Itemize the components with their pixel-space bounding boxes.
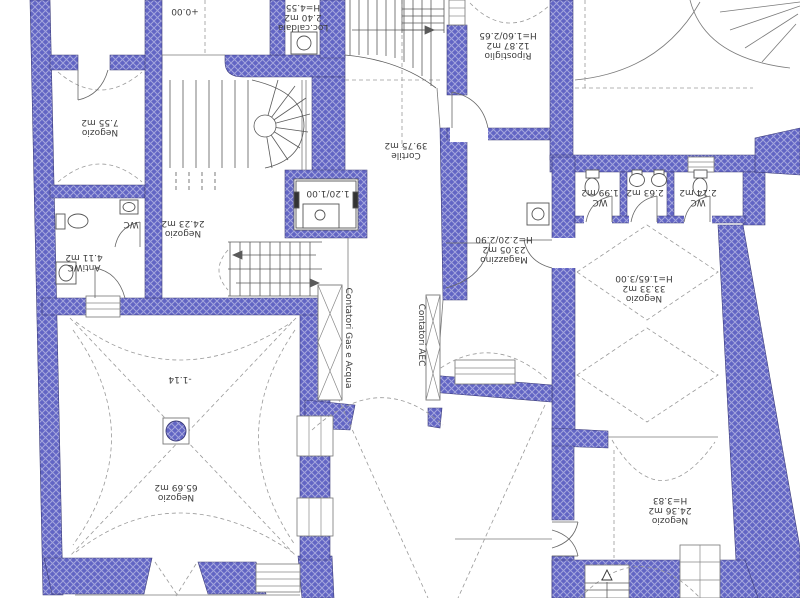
room-label-ripostiglio: Ripostiglio 12.87 m2 H=1.60/2.65 bbox=[479, 30, 536, 60]
room-label-negozio-755: Negozio 7.55 m2 bbox=[81, 117, 118, 137]
room-label-negozio-2423: Negozio 24.23 m2 bbox=[161, 218, 204, 238]
level-label-lower: -1.14 bbox=[168, 374, 191, 384]
floor-plan: +0.00 Negozio 7.55 m2 WC AntiWC 4.11 m2 … bbox=[0, 0, 800, 598]
elevator-size-label: 1.20/1.00 bbox=[306, 188, 349, 198]
room-label-magazzino: Magazzino 23.05 m2 H=2.20/2.90 bbox=[475, 234, 532, 264]
room-label-negozio-2436: Negozio 24.36 m2 H=3.83 bbox=[648, 495, 691, 525]
room-label-cortile: Cortile 39.75 m2 bbox=[384, 140, 427, 160]
room-label-wc-1: WC 1.99 m2 bbox=[581, 187, 618, 207]
room-label-wc-2: WC 2.14 m2 bbox=[679, 187, 716, 207]
meters-label-aec: Contatori AEC bbox=[416, 304, 426, 367]
meters-label-gas-water: Contatori Gas e Acqua bbox=[343, 288, 353, 389]
room-label-negozio-6569: Negozio 65.69 m2 bbox=[154, 482, 197, 502]
room-label-antiwc: AntiWC 4.11 m2 bbox=[65, 252, 102, 272]
room-label-negozio-3333: Negozio 33.33 m2 H=1.65/3.00 bbox=[615, 273, 672, 303]
room-label-loc-caldaia: Loc.caldaia 2.40 m2 H=4.55 bbox=[278, 2, 328, 32]
room-label-bagno: 2.63 m2 bbox=[626, 187, 663, 197]
room-label-wc-left: WC bbox=[123, 219, 138, 229]
level-label-entry: +0.00 bbox=[171, 6, 199, 16]
